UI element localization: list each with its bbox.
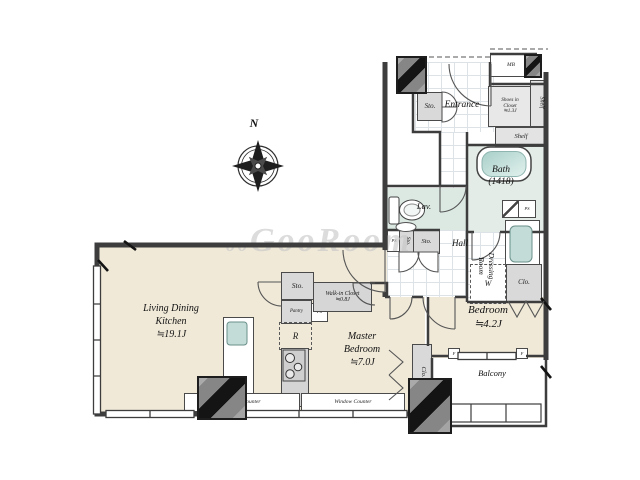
column-top: [396, 56, 427, 94]
shelf-bottom-label: Shelf: [515, 133, 528, 140]
watermark-prefix: oo: [226, 235, 250, 255]
floor-plan: MB Sto. Shoes in Closet ≒1.3J Shelf PS S…: [0, 0, 640, 480]
watermark-text: GooRoom: [250, 222, 413, 259]
refrigerator: R: [279, 322, 312, 350]
compass-north-label: N: [244, 116, 264, 132]
shelf-side-label: Shelf: [532, 83, 545, 123]
watermark: ooGooRoom: [226, 222, 413, 260]
walk-in-closet-label: Walk-in Closet ≒0.8J: [325, 291, 359, 304]
hall-storage-small-label: Sto.: [401, 230, 411, 252]
wall-niche: [502, 200, 519, 218]
kitchen-storage: Sto.: [281, 272, 314, 300]
bedroom-label: Bedroom ≒4.2J: [436, 303, 540, 332]
ps-wall-label: PS: [525, 206, 530, 211]
lav-label: Lav.: [406, 201, 442, 212]
compass-rose: [232, 140, 284, 192]
ps-wall-box: PS: [518, 200, 536, 218]
meter-box-label: MB: [507, 62, 515, 68]
closet-bedroom-label: Clo.: [415, 352, 427, 392]
pantry: Pantry: [281, 300, 312, 324]
shelf-bottom: Shelf: [495, 127, 547, 147]
closet-dressing-label: Clo.: [518, 279, 530, 287]
balcony-label: Balcony: [447, 368, 537, 379]
walk-in-closet: Walk-in Closet ≒0.8J: [313, 282, 372, 312]
corridor-floor: [440, 132, 467, 188]
refrigerator-label: R: [293, 331, 299, 341]
closet-dressing: Clo.: [506, 264, 542, 302]
column-bottom-left: [197, 376, 247, 420]
window-counter-right: Window Counter: [301, 393, 405, 412]
bath-label: Bath (1418): [473, 164, 529, 189]
master-bedroom-label: Master Bedroom ≒7.0J: [312, 330, 412, 369]
pantry-label: Pantry: [290, 309, 303, 314]
hall-storage-label: Sto.: [422, 238, 432, 245]
fix-window-left-label: F: [453, 351, 456, 356]
entrance-label: Entrance: [430, 99, 494, 111]
hall-storage: Sto.: [413, 230, 440, 254]
shoes-in-closet: Shoes in Closet ≒1.3J: [488, 86, 532, 127]
basin-counter: [505, 220, 540, 270]
fix-window-right-label: F: [521, 351, 524, 356]
column-mb-corner: [524, 54, 542, 78]
kitchen-storage-label: Sto.: [292, 282, 303, 290]
fix-window-left: F: [448, 348, 460, 359]
window-counter-right-label: Window Counter: [334, 399, 371, 405]
shoes-in-closet-label: Shoes in Closet ≒1.3J: [501, 98, 518, 115]
ldk-label: Living Dining Kitchen ≒19.1J: [138, 302, 204, 341]
dressing-room-label: Dressing Room: [472, 236, 496, 296]
fix-window-right: F: [516, 348, 528, 359]
